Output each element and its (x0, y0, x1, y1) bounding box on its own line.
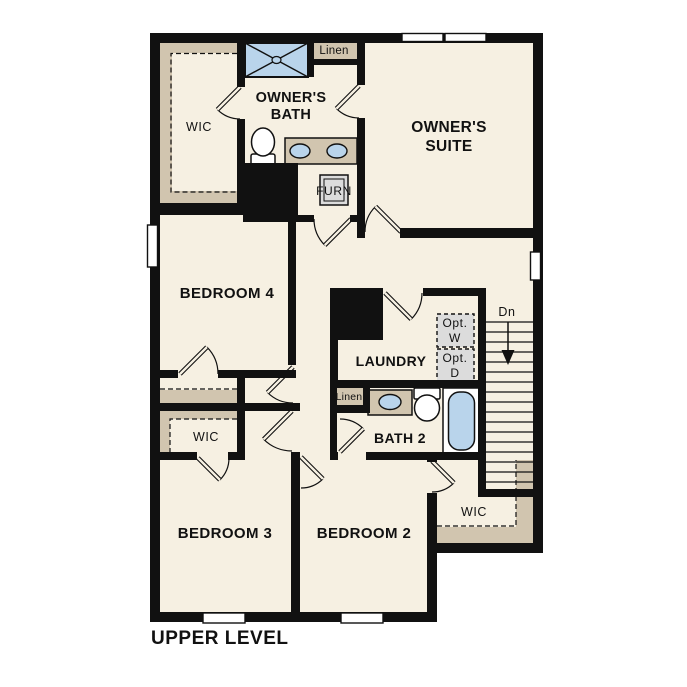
bedroom-3-label: BEDROOM 3 (155, 525, 295, 543)
bath2-linen-label: Linen (332, 391, 366, 404)
owners-toilet (251, 128, 275, 166)
bedroom2-wic-label: WIC (449, 505, 499, 520)
bath-2-label: BATH 2 (360, 430, 440, 447)
optional-washer-label: Opt. W (438, 316, 472, 346)
stairs-down-label: Dn (492, 305, 522, 320)
bathtub (443, 388, 480, 454)
bath2-vanity (368, 390, 412, 415)
laundry-label: LAUNDRY (341, 353, 441, 370)
owners-double-vanity (285, 138, 357, 164)
optional-dryer-label: Opt. D (438, 351, 472, 381)
bedroom-2-label: BEDROOM 2 (294, 525, 434, 543)
furnace-label: FURN (312, 184, 356, 198)
owners-suite-label: OWNER'S SUITE (394, 119, 504, 156)
bedroom3-wic-label: WIC (181, 430, 231, 445)
bath2-toilet (414, 388, 440, 421)
level-title: UPPER LEVEL (151, 628, 288, 650)
floor-plan-drawing (0, 0, 687, 687)
upper-linen-label: Linen (310, 45, 358, 59)
shower (245, 43, 308, 77)
owners-wic-label: WIC (169, 120, 229, 135)
floor-plan-page: WIC OWNER'S BATH Linen OWNER'S SUITE FUR… (0, 0, 687, 687)
bedroom-4-label: BEDROOM 4 (157, 285, 297, 303)
owners-bath-label: OWNER'S BATH (243, 90, 339, 125)
